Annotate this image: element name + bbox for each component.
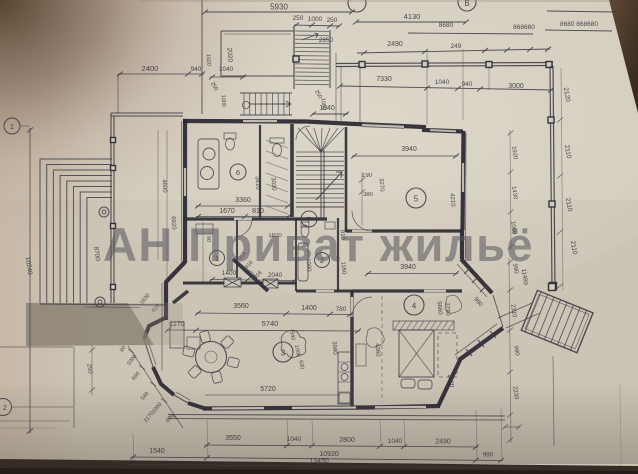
svg-text:2020: 2020 [226, 47, 234, 62]
svg-text:7330: 7330 [376, 76, 392, 83]
svg-text:1040: 1040 [287, 436, 302, 443]
svg-text:6: 6 [236, 168, 240, 177]
svg-text:13450: 13450 [309, 458, 329, 465]
svg-text:990: 990 [483, 452, 494, 459]
svg-text:2490: 2490 [387, 41, 403, 48]
svg-text:1000: 1000 [320, 98, 327, 111]
svg-text:1400: 1400 [222, 270, 237, 277]
svg-text:1540: 1540 [149, 448, 165, 455]
svg-text:868680: 868680 [513, 24, 535, 31]
svg-text:780: 780 [336, 306, 347, 313]
svg-text:1040: 1040 [435, 79, 450, 86]
svg-text:3550: 3550 [225, 435, 241, 442]
svg-text:10920: 10920 [319, 451, 339, 458]
svg-text:3790: 3790 [444, 302, 451, 316]
svg-text:1000: 1000 [220, 95, 227, 108]
svg-text:810: 810 [252, 208, 264, 215]
svg-text:4600: 4600 [161, 179, 168, 193]
svg-text:3270: 3270 [378, 178, 385, 192]
svg-text:1000: 1000 [308, 16, 323, 23]
svg-text:380: 380 [363, 192, 374, 198]
svg-text:2800: 2800 [339, 437, 355, 444]
svg-text:4: 4 [412, 302, 417, 311]
svg-text:3030: 3030 [270, 177, 277, 191]
svg-text:1040: 1040 [219, 66, 234, 73]
svg-text:8680 868680: 8680 868680 [560, 21, 598, 28]
svg-text:1040: 1040 [388, 438, 403, 445]
svg-text:АН Приват жильё: АН Приват жильё [103, 218, 534, 271]
svg-text:8680: 8680 [439, 22, 454, 29]
svg-text:1: 1 [10, 124, 14, 131]
svg-text:3980: 3980 [331, 341, 338, 355]
svg-text:940: 940 [191, 66, 202, 73]
svg-text:2490: 2490 [435, 439, 451, 446]
svg-text:5720: 5720 [260, 386, 276, 393]
svg-text:4210: 4210 [449, 193, 456, 207]
svg-text:1020: 1020 [205, 54, 212, 67]
svg-text:2850: 2850 [319, 37, 334, 44]
svg-text:1670: 1670 [219, 208, 235, 215]
svg-text:2400: 2400 [142, 64, 159, 73]
svg-text:249: 249 [451, 43, 462, 50]
svg-text:250: 250 [327, 17, 338, 24]
svg-text:5: 5 [414, 195, 419, 204]
svg-text:3560: 3560 [233, 303, 249, 310]
svg-text:2: 2 [3, 405, 7, 412]
svg-text:1400: 1400 [301, 305, 317, 312]
svg-text:3940: 3940 [401, 146, 417, 153]
svg-text:4130: 4130 [404, 12, 421, 21]
svg-text:5660: 5660 [436, 301, 443, 315]
svg-text:3410: 3410 [254, 176, 261, 190]
svg-text:5740: 5740 [262, 319, 279, 328]
svg-text:3360: 3360 [235, 197, 251, 204]
svg-text:2040: 2040 [268, 272, 283, 279]
svg-text:5930: 5930 [270, 3, 288, 12]
svg-text:250: 250 [293, 15, 304, 22]
